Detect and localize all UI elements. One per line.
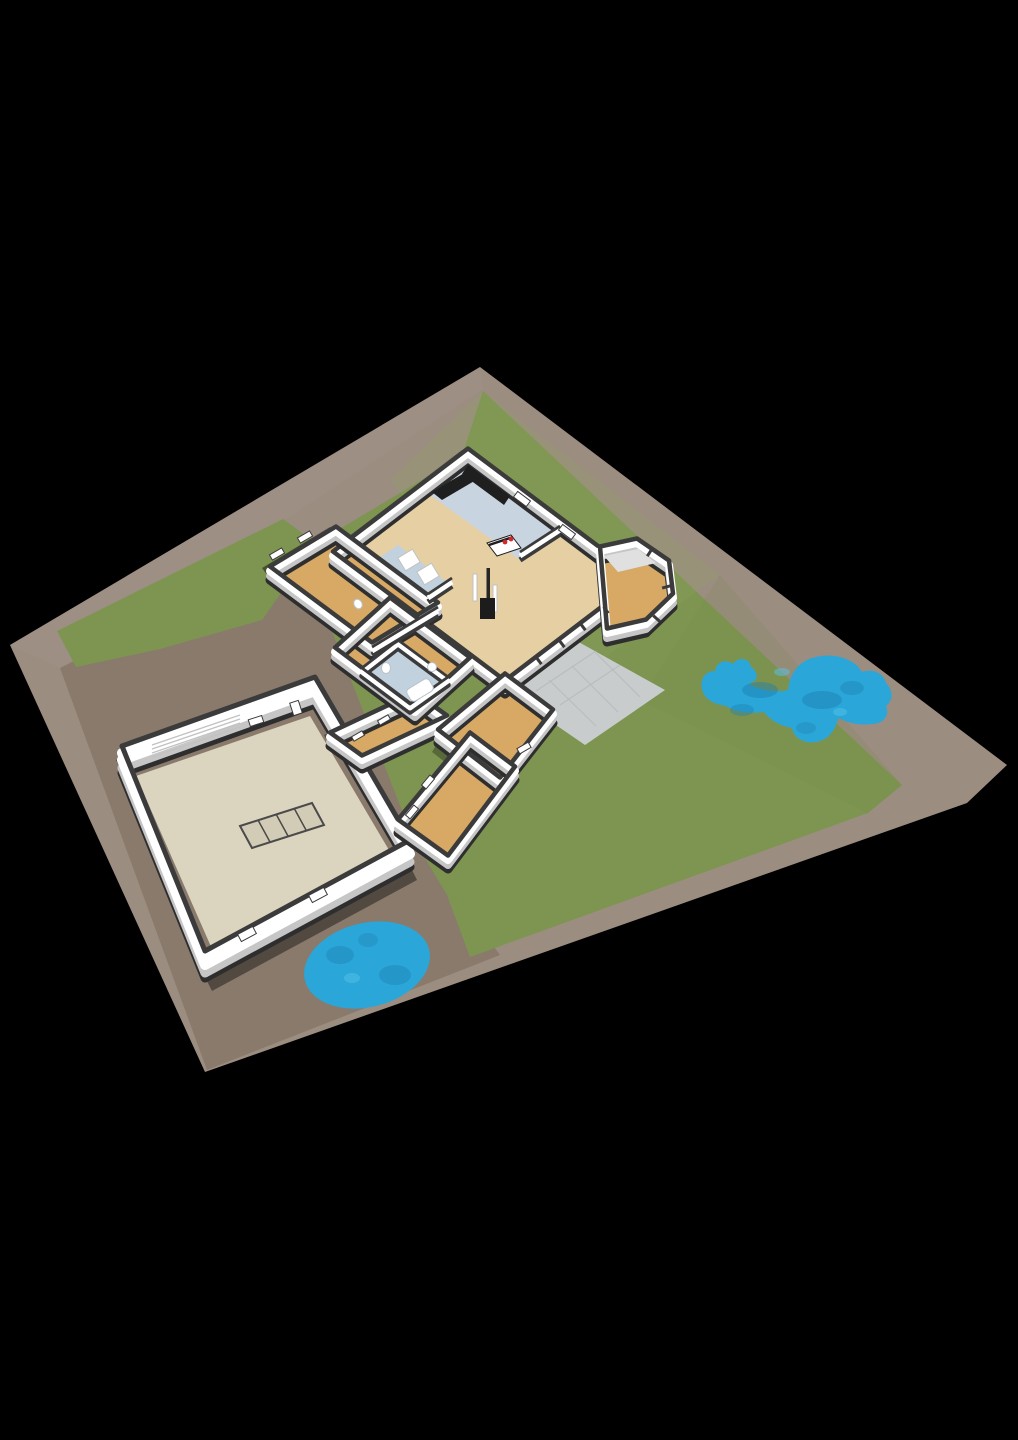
pond-ripple-light xyxy=(833,708,847,716)
site-plan-stage xyxy=(0,0,1018,1440)
pond-ripple-dark xyxy=(840,681,864,695)
pond-ripple-light xyxy=(774,668,790,676)
pool-ripple-dark xyxy=(326,946,354,964)
pool-ripple-light xyxy=(344,973,360,983)
stove-body xyxy=(480,598,495,619)
pond-ripple-dark xyxy=(742,682,778,698)
pond-ripple-dark xyxy=(730,704,754,716)
sink xyxy=(428,663,437,672)
pool-ripple-dark xyxy=(379,965,411,985)
hob-burner xyxy=(509,537,514,542)
stove-chimney xyxy=(487,568,491,600)
pond-ripple-dark xyxy=(802,691,842,709)
hob-burner xyxy=(503,540,508,545)
pond-ripple-dark xyxy=(796,722,816,734)
stove-pillar xyxy=(473,574,477,601)
pool-ripple-dark xyxy=(358,933,378,947)
toilet xyxy=(382,663,391,674)
floor-plan-scene xyxy=(0,0,1018,1440)
